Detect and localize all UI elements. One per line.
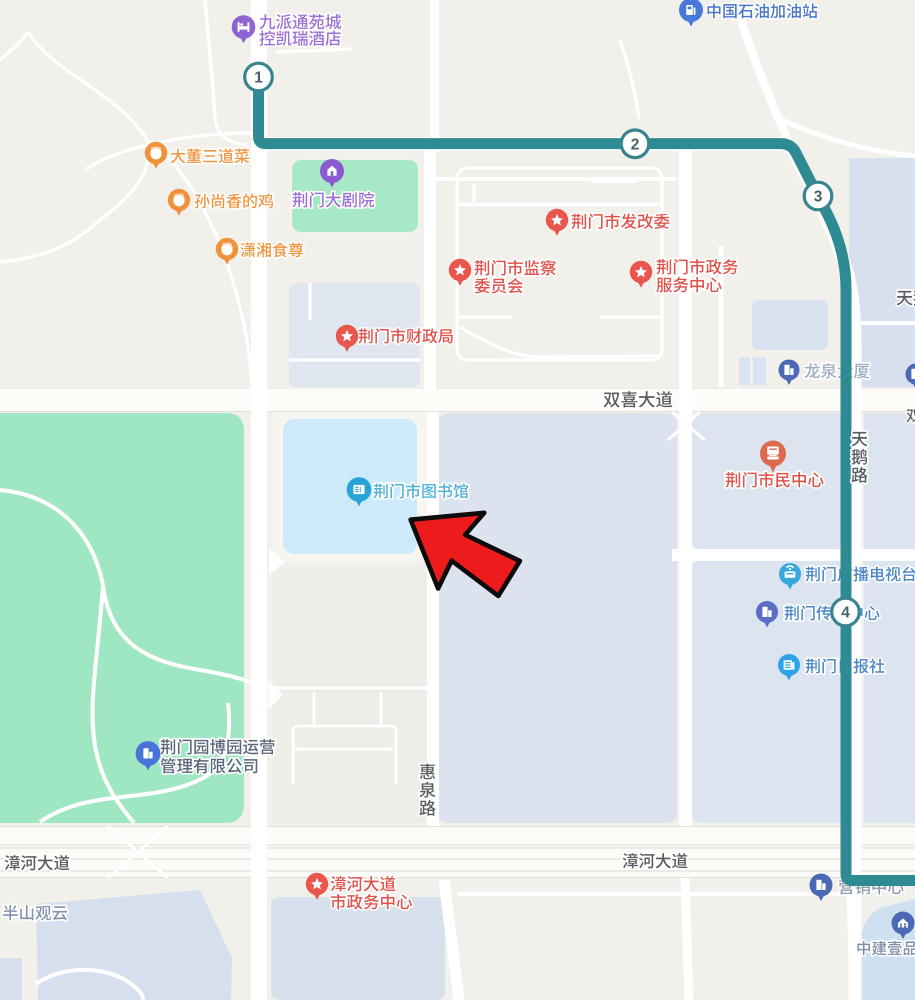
svg-text:3: 3 <box>814 189 823 206</box>
svg-text:2: 2 <box>631 136 640 153</box>
svg-text:4: 4 <box>841 605 850 622</box>
svg-text:1: 1 <box>254 70 263 87</box>
